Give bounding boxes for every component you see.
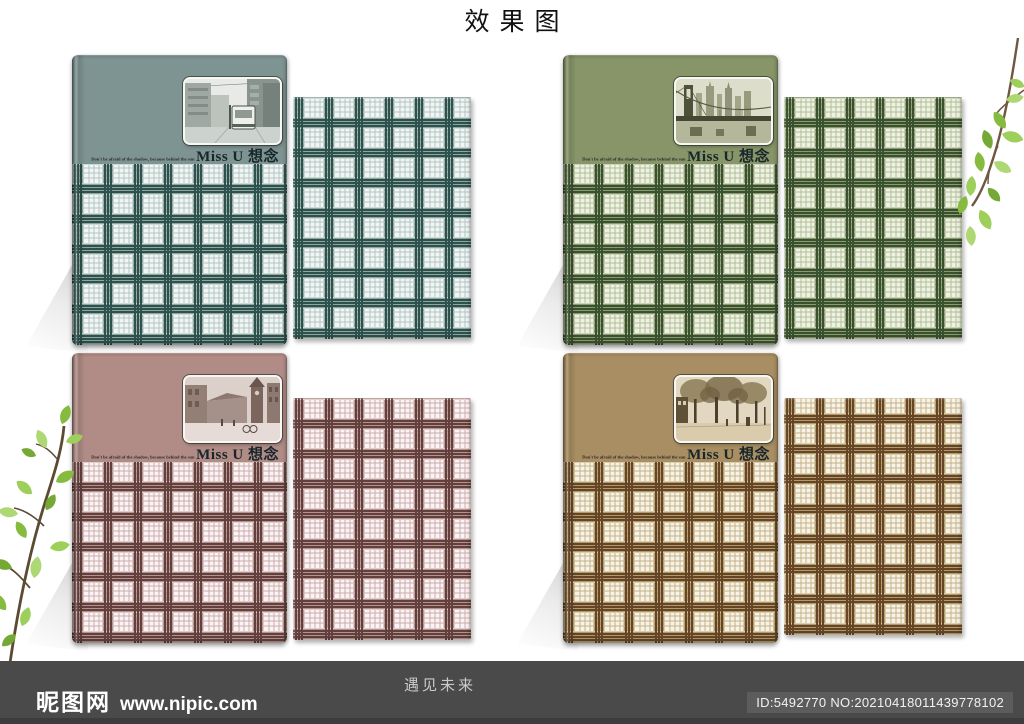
photo-town-square	[183, 375, 282, 443]
photo-cable-car-street	[183, 77, 282, 145]
cover-plaid-pattern	[72, 164, 287, 345]
mockup-group-teal: Don't be afraid of the shadow, because b…	[72, 55, 552, 355]
notebook-cover-brown: Don't be afraid of the shadow, because b…	[563, 353, 778, 643]
image-id-badge: ID:5492770 NO:20210418011439778102	[747, 692, 1013, 713]
design-preview-page: { "page": { "title": "效果图" }, "notebooks…	[0, 0, 1024, 724]
photo-tree-street	[674, 375, 773, 443]
watermark-footer-bar: 昵图网 www.nipic.com 遇见未来 ID:5492770 NO:202…	[0, 661, 1024, 724]
nipic-site-url: www.nipic.com	[120, 694, 258, 716]
pattern-swatch-teal	[293, 97, 471, 339]
page-title: 效果图	[0, 2, 1024, 38]
notebook-cover-pink: Don't be afraid of the shadow, because b…	[72, 353, 287, 643]
photo-bridge-skyline	[674, 77, 773, 145]
pattern-swatch-brown	[784, 398, 962, 635]
caption-quote: Don't be afraid of the shadow, because b…	[582, 157, 685, 162]
cover-plaid-pattern	[563, 164, 778, 345]
mockup-group-brown: Don't be afraid of the shadow, because b…	[563, 353, 1024, 653]
caption-title: Miss U 想念	[196, 443, 279, 464]
cover-plaid-pattern	[72, 462, 287, 643]
caption-title: Miss U 想念	[687, 443, 770, 464]
cover-caption: Don't be afraid of the shadow, because b…	[479, 145, 770, 166]
notebook-cover-green: Don't be afraid of the shadow, because b…	[563, 55, 778, 345]
caption-quote: Don't be afraid of the shadow, because b…	[91, 157, 194, 162]
caption-quote: Don't be afraid of the shadow, because b…	[91, 455, 194, 460]
caption-quote: Don't be afraid of the shadow, because b…	[582, 455, 685, 460]
notebook-cover-teal: Don't be afraid of the shadow, because b…	[72, 55, 287, 345]
caption-title: Miss U 想念	[196, 145, 279, 166]
pattern-swatch-green	[784, 97, 962, 339]
footer-slogan: 遇见未来	[404, 674, 476, 695]
nipic-logo: 昵图网	[36, 683, 111, 717]
cover-caption: Don't be afraid of the shadow, because b…	[0, 145, 279, 166]
branch-leaves-decoration-bottom-left	[0, 398, 95, 663]
mockup-group-pink: Don't be afraid of the shadow, because b…	[72, 353, 552, 653]
nipic-logo-row: 昵图网 www.nipic.com	[36, 683, 258, 717]
branch-leaves-decoration-top-right	[954, 38, 1024, 248]
caption-title: Miss U 想念	[687, 145, 770, 166]
cover-plaid-pattern	[563, 462, 778, 643]
pattern-swatch-pink	[293, 398, 471, 640]
cover-caption: Don't be afraid of the shadow, because b…	[479, 443, 770, 464]
